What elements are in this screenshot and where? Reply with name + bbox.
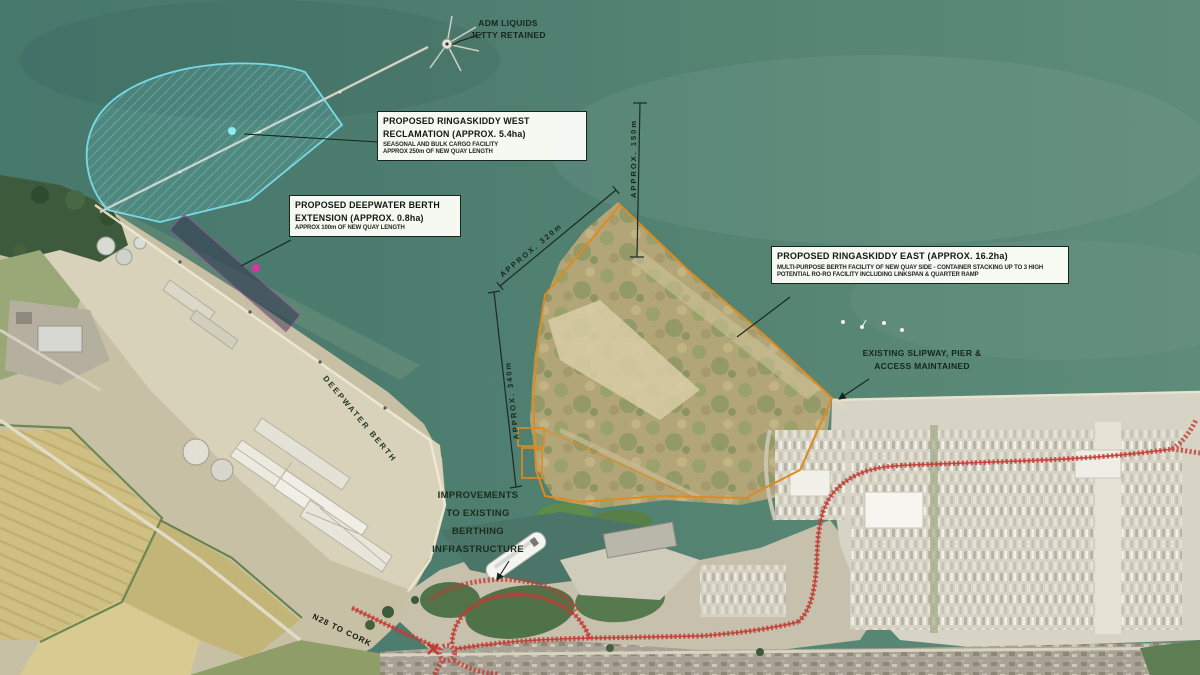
adm-jetty-label-line1: ADM LIQUIDS xyxy=(446,17,570,29)
ringaskiddy-east-callout: PROPOSED RINGASKIDDY EAST (APPROX. 16.2h… xyxy=(771,246,1069,284)
adm-jetty-label: ADM LIQUIDS JETTY RETAINED xyxy=(446,17,570,41)
berthing-improvements-line1: IMPROVEMENTS xyxy=(396,487,560,505)
deepwater-extension-title-line1: PROPOSED DEEPWATER BERTH xyxy=(295,199,455,212)
aerial-plan: ADM LIQUIDS JETTY RETAINED PROPOSED RING… xyxy=(0,0,1200,675)
reclamation-marker-dot xyxy=(228,127,236,135)
adm-jetty-label-line2: JETTY RETAINED xyxy=(446,29,570,41)
deepwater-extension-sub1: APPROX 100m OF NEW QUAY LENGTH xyxy=(295,225,455,232)
west-reclamation-sub2: APPROX 250m OF NEW QUAY LENGTH xyxy=(383,149,581,156)
west-reclamation-callout: PROPOSED RINGASKIDDY WEST RECLAMATION (A… xyxy=(377,111,587,161)
west-reclamation-title-line2: RECLAMATION (APPROX. 5.4ha) xyxy=(383,128,581,141)
slipway-label: EXISTING SLIPWAY, PIER & ACCESS MAINTAIN… xyxy=(834,347,1010,373)
dimension-label-150m: APPROX. 150m xyxy=(629,119,638,198)
berthing-improvements-line4: INFRASTRUCTURE xyxy=(396,541,560,559)
berthing-improvements-line2: TO EXISTING xyxy=(396,505,560,523)
slipway-label-line2: ACCESS MAINTAINED xyxy=(834,360,1010,373)
west-reclamation-title-line1: PROPOSED RINGASKIDDY WEST xyxy=(383,115,581,128)
ringaskiddy-east-sub2: POTENTIAL RO-RO FACILITY INCLUDING LINKS… xyxy=(777,272,1063,279)
berthing-improvements-label: IMPROVEMENTS TO EXISTING BERTHING INFRAS… xyxy=(396,487,560,559)
ringaskiddy-east-title: PROPOSED RINGASKIDDY EAST (APPROX. 16.2h… xyxy=(777,250,1063,263)
berth-marker-dot xyxy=(252,264,260,272)
west-reclamation-sub1: SEASONAL AND BULK CARGO FACILITY xyxy=(383,142,581,149)
deepwater-extension-callout: PROPOSED DEEPWATER BERTH EXTENSION (APPR… xyxy=(289,195,461,237)
aerial-basemap xyxy=(0,0,1200,675)
berthing-improvements-line3: BERTHING xyxy=(396,523,560,541)
ringaskiddy-east-sub1: MULTI-PURPOSE BERTH FACILITY OF NEW QUAY… xyxy=(777,265,1063,272)
slipway-label-line1: EXISTING SLIPWAY, PIER & xyxy=(834,347,1010,360)
deepwater-extension-title-line2: EXTENSION (APPROX. 0.8ha) xyxy=(295,212,455,225)
